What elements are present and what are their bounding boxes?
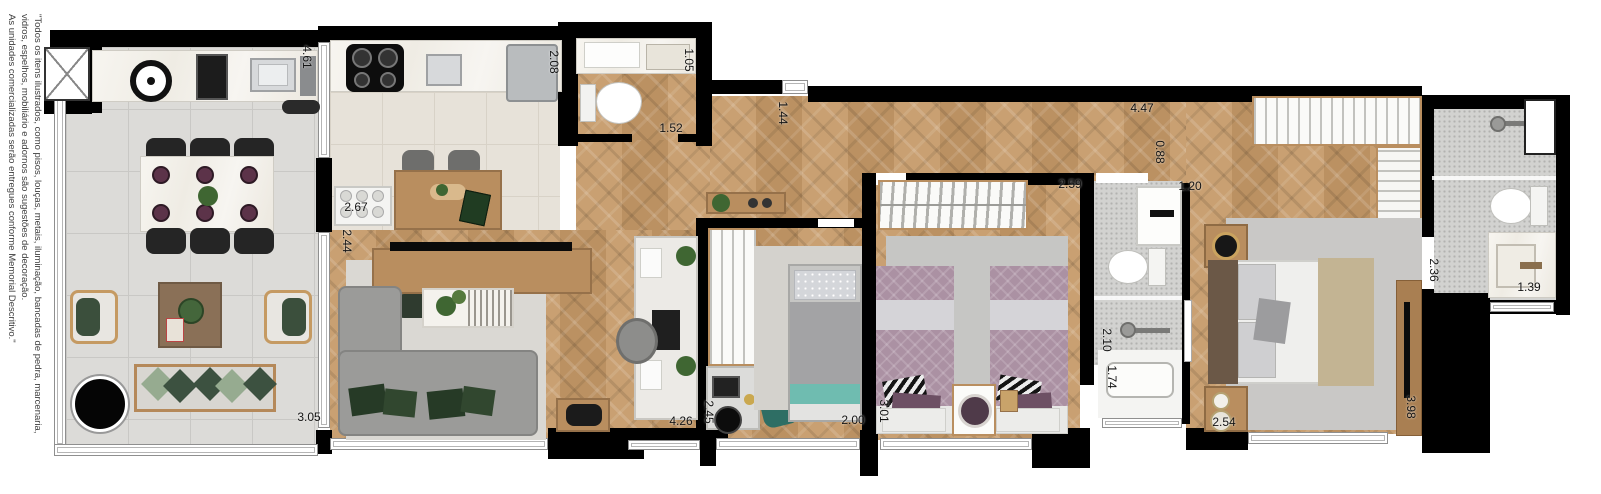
toilet-tank (1148, 248, 1166, 286)
sink-basin (258, 64, 288, 86)
bedroom1-window (716, 438, 860, 450)
papers (640, 248, 662, 278)
faucet (1520, 262, 1542, 269)
printer (566, 404, 602, 426)
shower-head (1120, 322, 1136, 338)
toilet (1490, 188, 1532, 224)
floor-plan: "Todos os itens ilustrados, como pisos, … (0, 0, 1601, 494)
plant (452, 290, 466, 304)
lavabo-tray (584, 42, 640, 68)
shower-screen (1094, 296, 1182, 300)
dim-living: 2.44 (340, 229, 354, 252)
wall (862, 185, 876, 440)
dim-balcony-width: 4.61 (300, 45, 314, 68)
wall (860, 430, 878, 476)
wall (700, 430, 716, 466)
pillow (882, 408, 946, 432)
wall (1080, 173, 1094, 385)
magazine (166, 318, 184, 342)
kitchen-sliding-door (318, 42, 330, 158)
bed-throw (790, 384, 860, 404)
dim-lavabo-depth: 1.05 (682, 48, 696, 71)
bed-duvet (790, 302, 860, 384)
dining-chair (146, 228, 186, 254)
picture-frame (1000, 390, 1018, 412)
place-setting (240, 204, 258, 222)
dim-hall-length: 4.47 (1130, 101, 1153, 115)
sofa-pillow (460, 386, 495, 416)
dim-master-width: 2.54 (1212, 415, 1235, 429)
accent-pillow (1253, 298, 1291, 344)
wall (44, 100, 92, 114)
duct-shaft (44, 47, 90, 101)
dim-bedroom2-width: 2.59 (1058, 177, 1081, 191)
herbs (436, 184, 448, 196)
decor-basket (958, 394, 992, 428)
dining-chair (234, 228, 274, 254)
ensuite-window (1490, 302, 1554, 312)
dim-bathroom2-width: 1.20 (1178, 179, 1201, 193)
desk-plant (676, 246, 696, 266)
dim-ensuite-depth: 2.36 (1427, 258, 1441, 281)
wall (50, 30, 318, 47)
center-table-slats (468, 290, 512, 326)
disclaimer-text: "Todos os itens ilustrados, como pisos, … (4, 14, 44, 478)
dim-hall-width: 1.44 (776, 101, 790, 124)
table-plant (198, 186, 218, 206)
twin-bed-blanket (990, 300, 1068, 330)
wall (316, 158, 332, 232)
place-setting (196, 204, 214, 222)
decor-bowl (748, 198, 758, 208)
sofa-pillow (383, 388, 418, 417)
dim-ensuite-width: 1.39 (1517, 280, 1540, 294)
shower-head (1490, 116, 1506, 132)
sofa-pillow (427, 388, 466, 420)
place-setting (152, 204, 170, 222)
toilet-tank (1530, 186, 1548, 226)
armchair-cushion (76, 298, 100, 336)
duct-shaft (1524, 99, 1556, 155)
burner (378, 48, 398, 68)
tv (390, 242, 572, 251)
wall (576, 134, 632, 142)
dim-bedroom1-depth: 2.45 (702, 400, 716, 423)
coffee-machine (282, 100, 320, 114)
disclaimer-line-2: vidros, espelhos, mobiliário e adornos s… (18, 14, 31, 478)
wall (1422, 293, 1490, 453)
faucet (1150, 210, 1174, 217)
toilet-tank (580, 84, 596, 122)
dim-bedroom1-width: 2.00 (841, 413, 864, 427)
desk-plant (676, 356, 696, 376)
toilet (1108, 250, 1148, 284)
wall (712, 80, 782, 94)
dish (372, 190, 384, 202)
bathroom2-door (1096, 173, 1148, 183)
living-sliding-door (318, 232, 330, 428)
headboard-pillows (1208, 260, 1238, 384)
dim-bathroom2-niche: 1.74 (1105, 365, 1119, 388)
dim-kitchen-width: 2.67 (344, 200, 367, 214)
burner (380, 72, 396, 88)
dim-bathroom2-depth: 2.10 (1100, 328, 1114, 351)
shower-screen (1432, 176, 1556, 180)
bedroom1-wardrobe (708, 228, 758, 366)
hall-lower-floor (576, 140, 710, 230)
bathroom2-window (1102, 418, 1182, 428)
disclaimer-line-1: "Todos os itens ilustrados, como pisos, … (31, 14, 44, 478)
dim-office: 4.26 (669, 414, 692, 428)
papers (640, 360, 662, 390)
bedroom1-door (818, 219, 854, 227)
twin-bed-blanket (876, 300, 954, 330)
dim-kitchen-depth: 2.08 (547, 50, 561, 73)
wall (576, 22, 712, 38)
round-side-table (72, 376, 128, 432)
burner (352, 48, 372, 68)
laptop (712, 376, 740, 398)
entry-door (782, 80, 808, 94)
dim-balcony-depth: 3.05 (297, 410, 320, 424)
dim-lavabo-width: 1.52 (659, 121, 682, 135)
bed-pillow (794, 270, 856, 300)
decor-plate (1212, 392, 1230, 410)
office-chair (616, 318, 658, 364)
place-setting (196, 166, 214, 184)
burner (354, 72, 370, 88)
balcony-glass-railing (54, 444, 318, 456)
decor-bowl (762, 198, 772, 208)
grill (196, 54, 228, 100)
disclaimer-line-3: As unidades comercializadas serão entreg… (5, 14, 18, 478)
dining-chair (190, 228, 230, 254)
door-leaf (1184, 300, 1192, 362)
armchair-cushion (282, 298, 306, 336)
dim-bedroom2-depth: 3.01 (877, 399, 891, 422)
wall (1032, 428, 1090, 468)
bedroom2-window (880, 438, 1032, 450)
place-setting (240, 166, 258, 184)
dish (372, 206, 384, 218)
bed-throw (1318, 258, 1374, 386)
grill-knob (147, 77, 155, 85)
wall (1556, 95, 1570, 315)
stool (714, 406, 742, 434)
sofa-pillow (348, 384, 388, 417)
wall (696, 22, 712, 146)
dim-hall-corridor: 0.88 (1153, 140, 1167, 163)
kitchen-sink (426, 54, 462, 86)
bookshelf (878, 180, 1028, 230)
place-setting (152, 166, 170, 184)
dim-master-depth: 3.98 (1404, 395, 1418, 418)
office-window (628, 440, 700, 450)
master-wardrobe (1252, 96, 1422, 146)
master-tv (1404, 302, 1410, 398)
round-mirror (1212, 232, 1240, 260)
balcony-glass-railing (54, 47, 66, 447)
plant (712, 194, 730, 212)
master-window (1248, 432, 1388, 444)
wall (678, 134, 712, 142)
